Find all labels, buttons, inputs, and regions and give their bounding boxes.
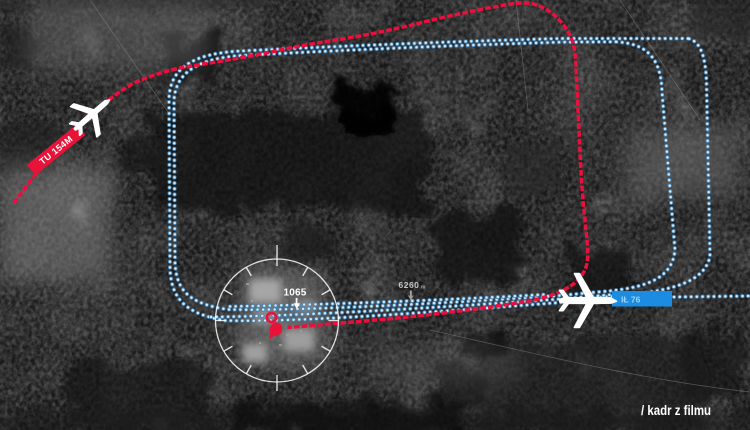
svg-text:m: m xyxy=(421,285,426,291)
svg-text:/ kadr z filmu: / kadr z filmu xyxy=(641,403,711,418)
svg-text:1065: 1065 xyxy=(284,287,307,298)
svg-text:IŁ 76: IŁ 76 xyxy=(621,295,641,305)
svg-text:6260: 6260 xyxy=(399,280,420,290)
